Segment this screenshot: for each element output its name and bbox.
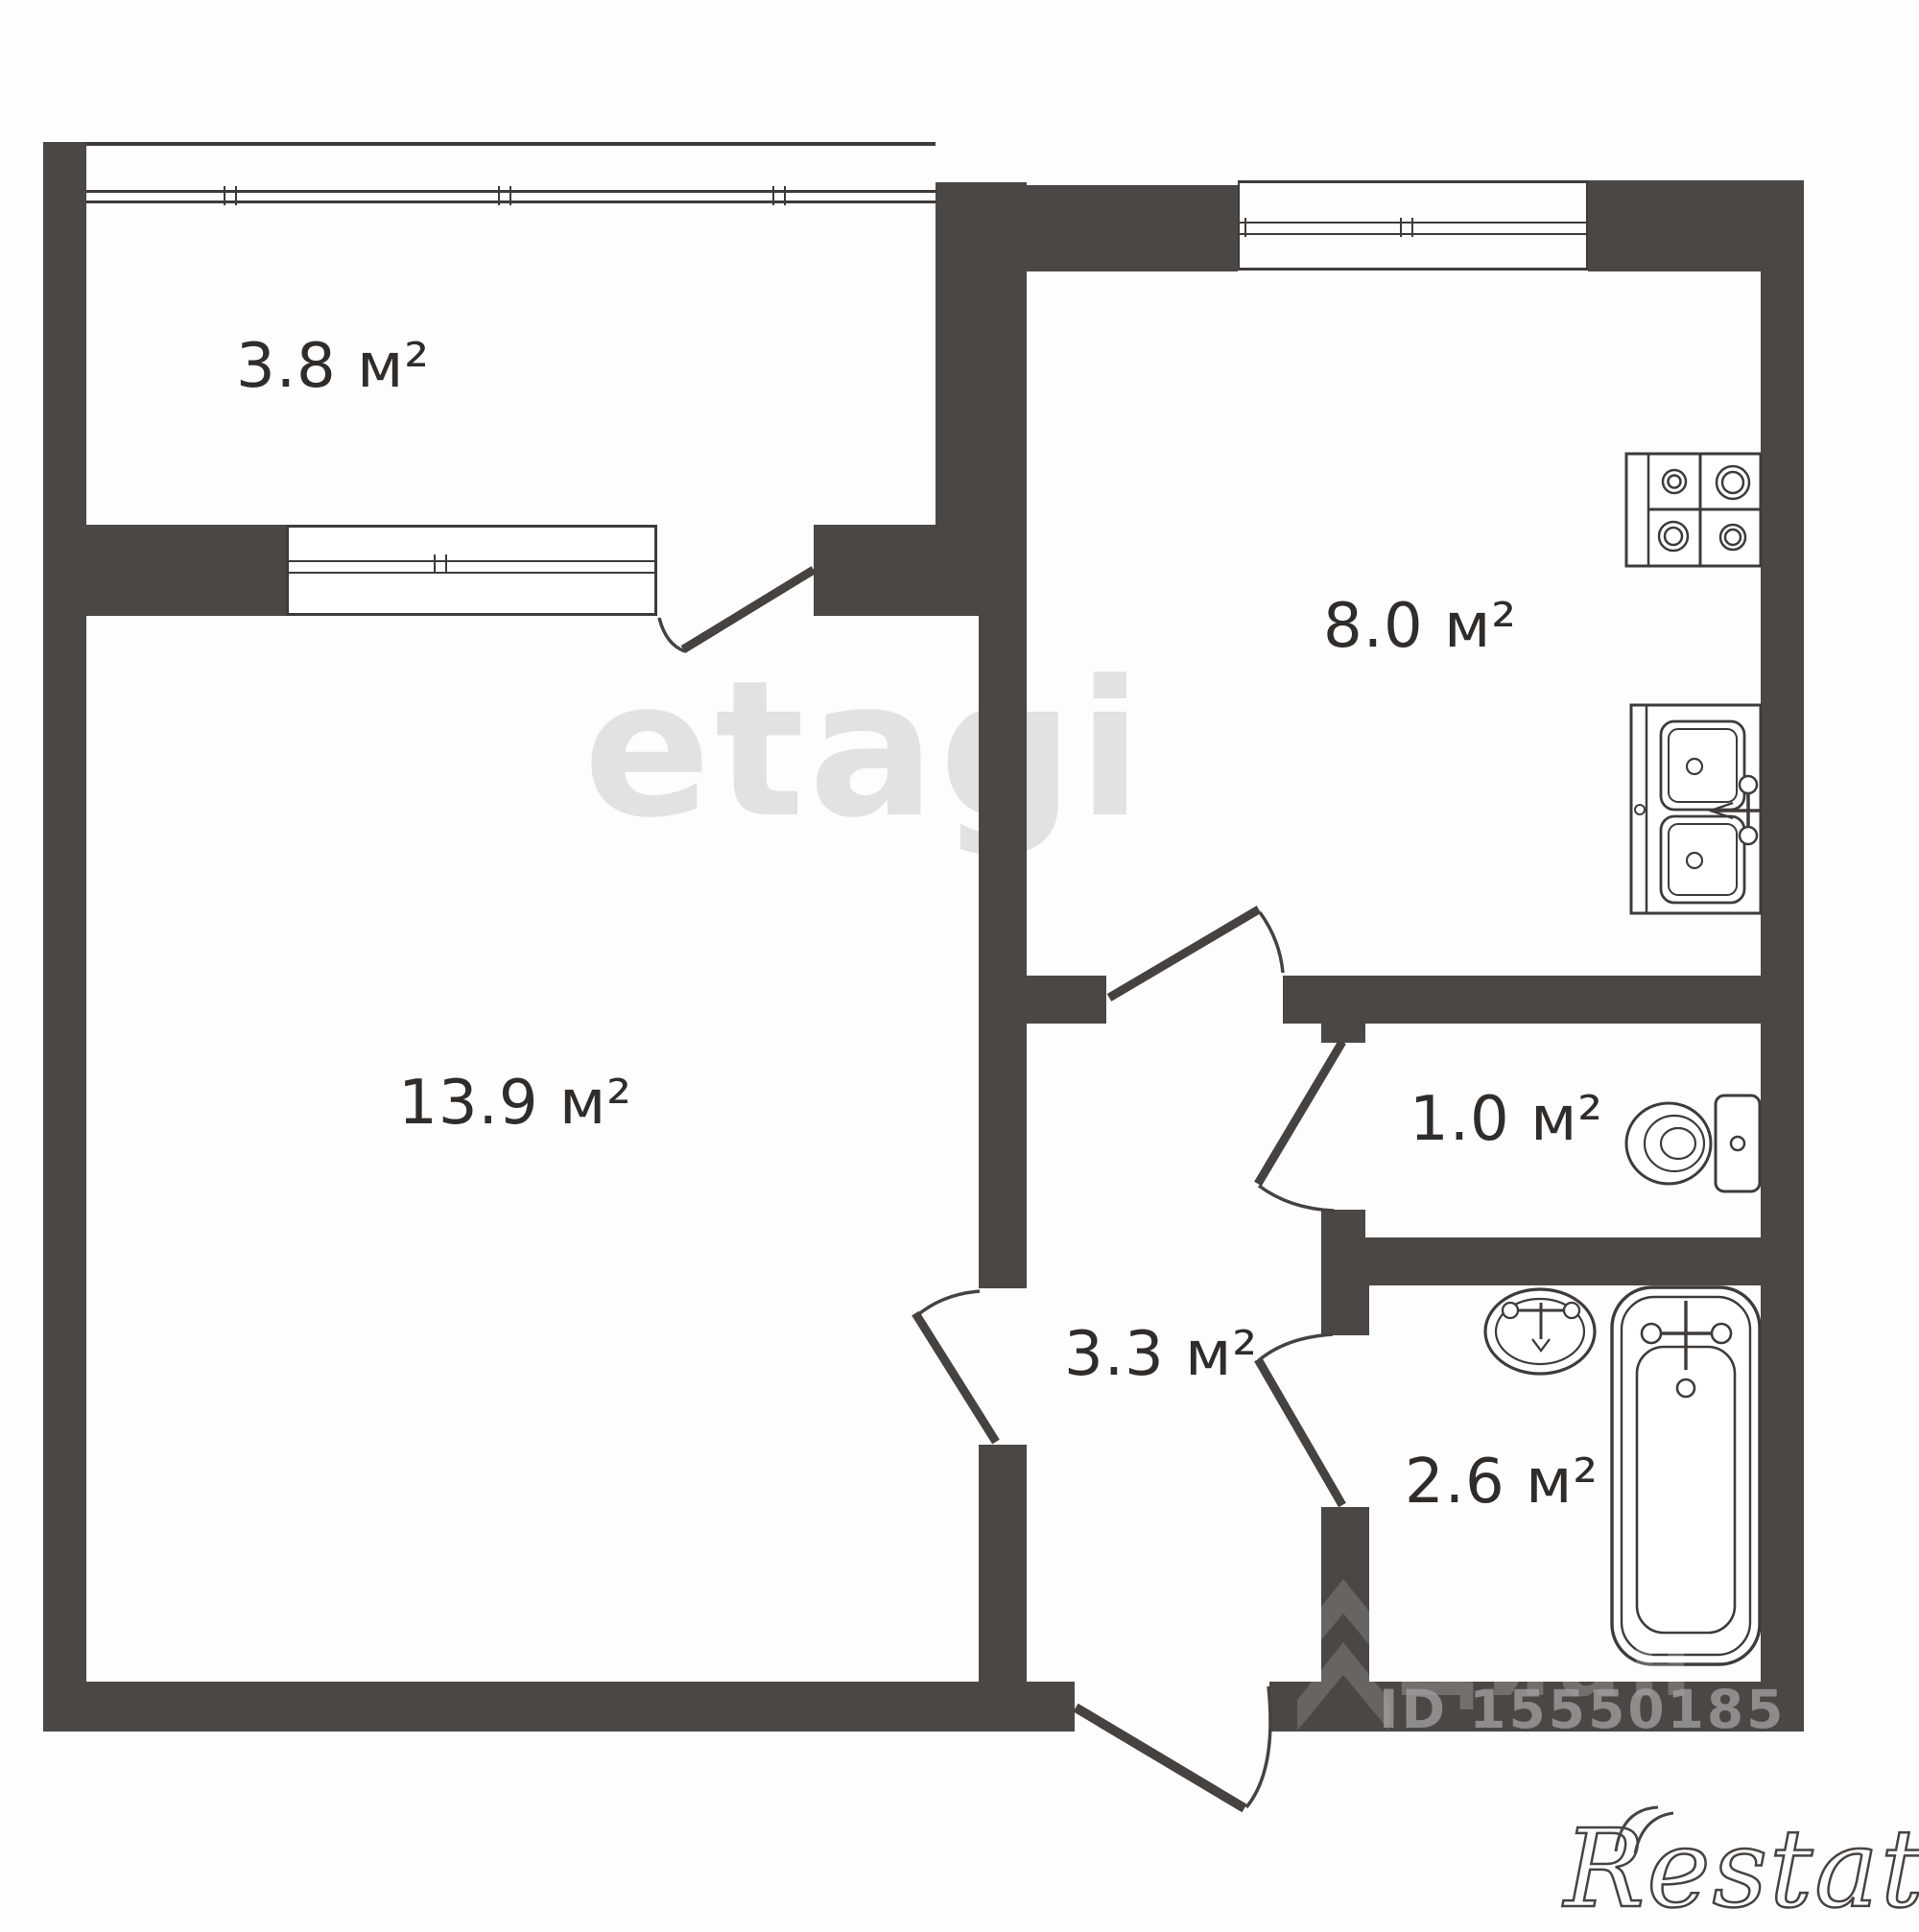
faucet-handle (1712, 1324, 1731, 1343)
faucet-handle (1740, 776, 1757, 793)
cian-id-watermark: ID 15550185 (1379, 1679, 1786, 1740)
cian-logo-chevron-icon (1297, 1579, 1389, 1731)
entrance-door (1076, 1686, 1270, 1808)
floor-plan: etagi (0, 0, 1919, 1919)
door-swing-arc (1259, 1186, 1334, 1211)
door-leaf (683, 570, 814, 649)
hallway-area-label: 3.3 м² (1064, 1319, 1258, 1390)
door-swing-arc (916, 1291, 980, 1316)
bathroom-area-label: 2.6 м² (1405, 1447, 1599, 1518)
door-leaf (1258, 1042, 1342, 1184)
living-room-door (915, 1291, 996, 1442)
faucet-handle (1564, 1303, 1579, 1318)
bathroom-door (1258, 1334, 1342, 1505)
door-leaf (915, 1313, 996, 1442)
door-swing-arc (1260, 912, 1283, 973)
faucet-handle (1503, 1303, 1518, 1318)
toilet-door (1258, 1042, 1342, 1211)
faucet-handle (1642, 1324, 1661, 1343)
balcony-door (659, 570, 814, 651)
kitchen-sink-icon (1631, 705, 1762, 913)
door-swing-arc (1259, 1334, 1333, 1360)
toilet-icon (1626, 1096, 1760, 1191)
drain (1677, 1379, 1694, 1397)
kitchen-door (1109, 909, 1283, 998)
restate-watermark: Restate (1564, 1807, 1919, 1932)
balcony-area-label: 3.8 м² (236, 331, 430, 402)
kitchen-area-label: 8.0 м² (1323, 591, 1517, 662)
door-swing-arc (659, 618, 685, 651)
door-leaf (1258, 1359, 1342, 1505)
bathtub-icon (1612, 1287, 1760, 1664)
faucet-handle (1740, 827, 1757, 844)
door-leaf (1109, 909, 1259, 998)
stove-icon (1626, 454, 1761, 566)
toilet-area-label: 1.0 м² (1410, 1084, 1603, 1155)
toilet-tank (1716, 1096, 1760, 1191)
door-swing-arc (1246, 1686, 1270, 1807)
door-leaf (1076, 1708, 1244, 1808)
living-room-area-label: 13.9 м² (398, 1068, 632, 1139)
wash-basin-icon (1485, 1289, 1595, 1374)
